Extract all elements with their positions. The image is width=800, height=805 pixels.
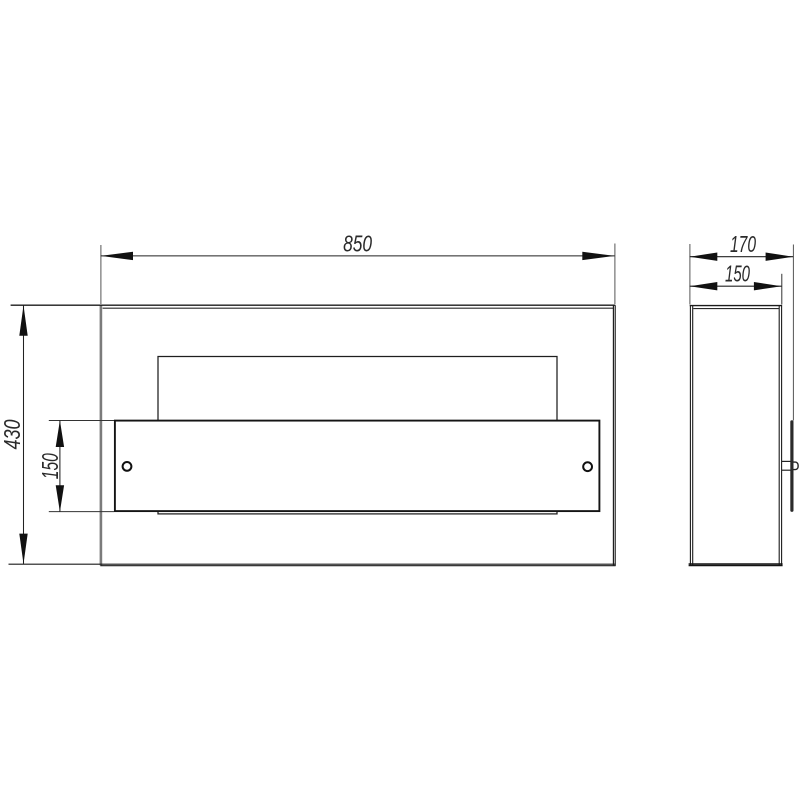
svg-text:150: 150 — [725, 261, 750, 287]
svg-text:170: 170 — [730, 231, 756, 257]
svg-text:150: 150 — [37, 453, 63, 479]
svg-text:850: 850 — [343, 231, 372, 257]
svg-text:430: 430 — [0, 419, 25, 449]
